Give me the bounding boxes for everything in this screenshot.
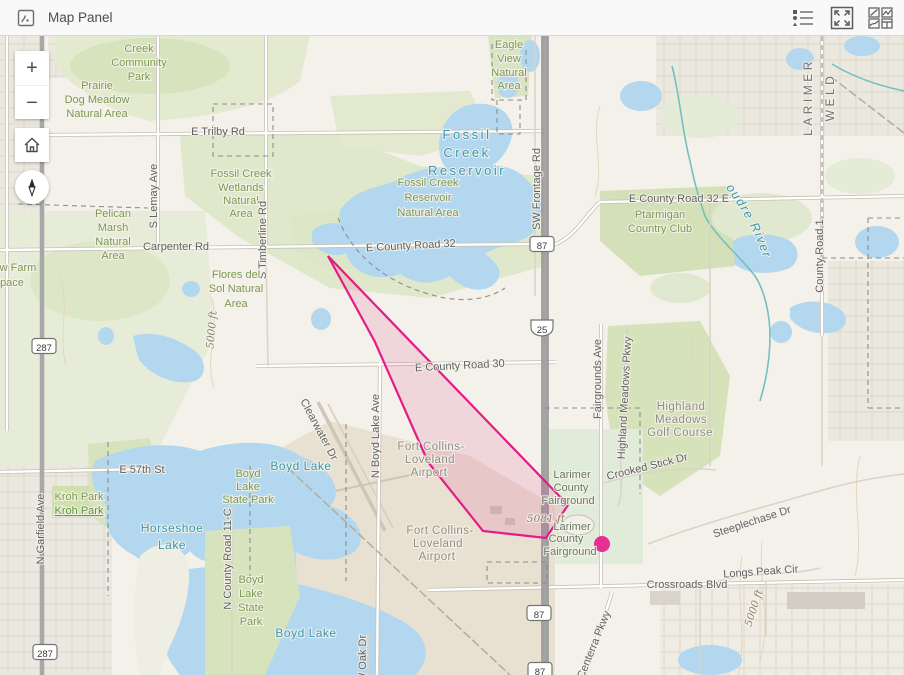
map-label: Natural: [491, 67, 526, 79]
map-label: Natural Area: [66, 108, 128, 120]
map-label: Eagle: [495, 39, 523, 51]
shield-number: 87: [537, 241, 548, 252]
map-label: E Trilby Rd: [191, 126, 245, 138]
map-label: Area: [101, 250, 125, 262]
panel-title: Map Panel: [48, 10, 113, 25]
map-label: Boyd: [235, 468, 260, 480]
map-label: Loveland: [405, 454, 455, 466]
map-label: Larimer: [553, 469, 591, 481]
map-label: LARIMER: [801, 58, 815, 136]
map-label: Kroh Park: [55, 491, 104, 503]
map-label: Horseshoe: [141, 521, 204, 535]
map-label: E County Road 32 E: [629, 193, 729, 205]
map-label: Larimer: [553, 521, 591, 533]
map-label: Fairground: [541, 495, 594, 507]
home-icon: [23, 136, 41, 154]
map-label: Fort Collins-: [406, 525, 473, 537]
map-view[interactable]: CreekCommunityParkPrairieDog MeadowNatur…: [0, 36, 904, 675]
map-label: Loveland: [413, 538, 463, 550]
map-label: View: [497, 53, 521, 65]
map-label: Community: [111, 57, 167, 69]
map-label: Natural: [223, 195, 258, 207]
widget-grid-icon[interactable]: [868, 5, 894, 31]
map-label: Wetlands: [218, 182, 264, 194]
map-label: County Road 1: [814, 219, 826, 292]
us-route-shield: 87: [528, 663, 552, 675]
map-label: Boyd Lake: [270, 459, 331, 473]
map-label: Park: [128, 71, 151, 83]
shield-number: 87: [535, 667, 546, 675]
map-label: E 57th St: [119, 464, 164, 476]
map-label: Boyd: [238, 574, 263, 586]
map-label: N Garfield Ave: [35, 494, 47, 565]
zoom-controls: + −: [15, 51, 49, 119]
map-label: Fairgrounds Ave: [592, 339, 604, 419]
map-label: S Timberline Rd: [257, 201, 269, 279]
map-label: Airport: [411, 467, 448, 479]
interstate-shield: 25: [531, 320, 553, 336]
map-panel-app: Map Panel: [0, 0, 904, 675]
map-label: SW Frontage Rd: [531, 148, 543, 230]
map-label: Lake: [239, 588, 263, 600]
map-label: Boyd Lake: [275, 626, 336, 640]
map-label: Reservoir: [404, 192, 451, 204]
shield-number: 25: [537, 325, 548, 336]
map-label: Golf Course: [647, 427, 713, 439]
compass-needle-icon: [22, 177, 42, 197]
map-label: Creek: [124, 43, 154, 55]
zoom-in-button[interactable]: +: [15, 51, 49, 85]
map-label: State: [238, 602, 264, 614]
map-label: Pelican: [95, 208, 131, 220]
map-label: Area: [229, 208, 253, 220]
us-route-shield: 287: [32, 339, 56, 355]
panel-header: Map Panel: [0, 0, 904, 36]
map-label: Crossroads Blvd: [647, 579, 728, 591]
shield-number: 287: [36, 343, 52, 354]
map-label: Country Club: [628, 223, 692, 235]
legend-icon[interactable]: [790, 5, 816, 31]
basemap: CreekCommunityParkPrairieDog MeadowNatur…: [0, 36, 904, 675]
compass-button[interactable]: [15, 170, 49, 204]
map-label: County: [554, 482, 589, 494]
map-label: N Boyd Lake Ave: [370, 394, 382, 478]
map-label: Highland: [657, 401, 706, 413]
panel-header-left: Map Panel: [0, 5, 790, 31]
shield-number: 87: [534, 610, 545, 621]
map-label: Dog Meadow: [65, 94, 130, 106]
map-label: Park: [240, 616, 263, 628]
map-label: Natural Area: [397, 207, 459, 219]
map-label: WELD: [823, 73, 837, 122]
map-label: Fossil Creek: [397, 177, 459, 189]
map-label: W Oak Dr: [357, 635, 369, 675]
map-label: Airport: [419, 551, 456, 563]
panel-header-tools: [790, 5, 904, 31]
map-label: N County Road 11-C: [222, 508, 234, 609]
map-label: Natural: [95, 236, 130, 248]
fullscreen-icon[interactable]: [829, 5, 855, 31]
map-label: Ptarmigan: [635, 209, 685, 221]
zoom-out-button[interactable]: −: [15, 85, 49, 119]
map-label: Meadows: [655, 414, 707, 426]
map-label: Fairground: [543, 546, 596, 558]
map-label: Fossil Creek: [210, 168, 272, 180]
map-label: Marsh: [98, 222, 129, 234]
map-label: w Farm: [0, 262, 36, 274]
us-route-shield: 87: [530, 237, 554, 253]
map-label: Reservoir: [428, 163, 506, 178]
map-label: Prairie: [81, 80, 113, 92]
map-label: Kroh Park: [55, 505, 104, 517]
map-label: Fort Collins-: [397, 441, 464, 453]
map-label: Flores del: [212, 269, 260, 281]
map-label: Sol Natural: [209, 283, 263, 295]
us-route-shield: 287: [33, 645, 57, 661]
us-route-shield: 87: [527, 606, 551, 622]
map-label: pace: [0, 277, 24, 289]
map-label: Lake: [236, 481, 260, 493]
shield-number: 287: [37, 649, 53, 660]
home-button[interactable]: [15, 128, 49, 162]
map-label: Area: [224, 298, 248, 310]
map-label: Area: [497, 80, 521, 92]
map-label: State Park: [222, 494, 274, 506]
map-label: Fossil: [443, 127, 492, 142]
map-label: Carpenter Rd: [143, 241, 209, 253]
map-label: Creek: [443, 145, 490, 160]
map-label: S Lemay Ave: [148, 164, 160, 229]
map-panel-icon: [13, 5, 39, 31]
map-label: County: [549, 533, 584, 545]
map-label: Lake: [158, 538, 186, 552]
